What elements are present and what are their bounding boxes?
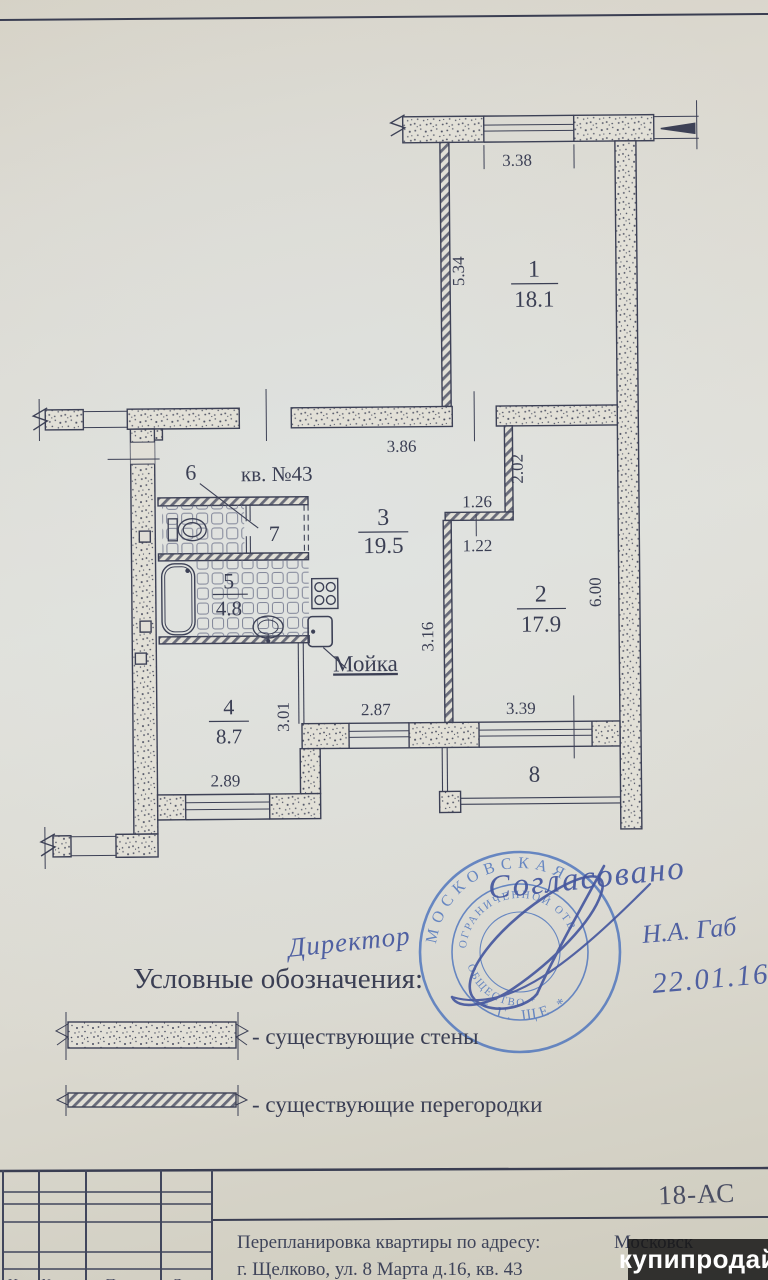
- room-7-number: 7: [269, 521, 280, 546]
- stove-icon: [312, 578, 338, 608]
- dim-room1-height: 5.34: [449, 256, 468, 286]
- dim-top-window: 3.38: [502, 151, 532, 170]
- wall-niche-mark: [135, 653, 146, 664]
- dim-room2-height: 6.00: [586, 577, 605, 607]
- niche-partition-horizontal: [445, 512, 513, 521]
- wall-break-arrow: [661, 123, 695, 133]
- wc-hall-divider: [246, 505, 250, 553]
- kitchen-room2-partition: [443, 520, 453, 722]
- sheet-code: 18-АС: [658, 1178, 736, 1211]
- legend-label-partitions: - существующие перегородки: [252, 1092, 542, 1117]
- plan-labels: 3.38 5.34 1 18.1 3.86 кв. №43 6 7 2.02 1…: [182, 150, 606, 791]
- revision-grid: [3, 1170, 212, 1280]
- wc-bath-partition: [158, 553, 308, 561]
- room-2-area: 17.9: [521, 611, 561, 636]
- dim-niche-width: 1.26: [462, 492, 492, 511]
- project-address: г. Щелково, ул. 8 Марта д.16, кв. 43: [237, 1259, 523, 1280]
- handwriting-name: Н.А. Габ: [640, 912, 738, 949]
- room-8-number: 8: [529, 762, 541, 787]
- dim-room2-window: 3.39: [506, 699, 536, 718]
- left-exterior-wall: [107, 429, 163, 834]
- room-4-area: 8.7: [216, 724, 242, 748]
- room-3-area: 19.5: [363, 533, 403, 558]
- watermark-text: купипродай: [619, 1244, 768, 1275]
- wc-top-partition: [158, 497, 308, 506]
- dim-room4-window: 2.89: [210, 771, 240, 790]
- sink-label: Мойка: [333, 651, 398, 677]
- handwriting-date: 22.01.16: [651, 958, 768, 1000]
- sheet-border-top: [0, 14, 768, 20]
- room-2-number: 2: [535, 582, 547, 608]
- room4-bottom-wall: [158, 794, 321, 820]
- legend-label-walls: - существующие стены: [252, 1024, 479, 1049]
- dim-kitchen-window: 2.87: [361, 700, 391, 719]
- middle-wall: [33, 386, 617, 445]
- room-1-number: 1: [528, 257, 540, 283]
- bath-bottom-partition: [159, 636, 309, 644]
- project-subject: Перепланировка квартиры по адресу:: [237, 1232, 540, 1253]
- dim-niche-offset: 1.22: [462, 536, 492, 555]
- wall-niche-mark: [139, 531, 150, 542]
- dim-kitchen-depth: 3.16: [418, 622, 437, 652]
- dim-niche-depth: 2.02: [508, 454, 527, 484]
- legend-symbol-partition: [57, 1085, 247, 1116]
- room-5-area: 4.8: [216, 596, 242, 620]
- room-1-area: 18.1: [514, 287, 554, 312]
- apartment-label: кв. №43: [241, 462, 313, 487]
- wc-floor-tiles: [162, 505, 244, 554]
- dim-hall-width: 3.86: [387, 437, 417, 456]
- bottom-wall-windows: [300, 695, 621, 794]
- room1-top-wall: [391, 100, 700, 170]
- bathtub-icon: [162, 564, 196, 635]
- hall-kitchen-divider: [304, 505, 308, 553]
- floor-plan-drawing: 3.38 5.34 1 18.1 3.86 кв. №43 6 7 2.02 1…: [0, 0, 768, 1280]
- legend-title: Условные обозначения:: [133, 963, 423, 995]
- legend-symbol-wall: [56, 1012, 248, 1060]
- room-6-number: 6: [185, 460, 196, 485]
- floor-plan: [31, 100, 706, 869]
- watermark-badge: купипродай: [628, 1239, 768, 1280]
- handwriting-director: Директор: [283, 920, 411, 963]
- room4-divider: [298, 643, 304, 724]
- wall-niche-mark: [140, 621, 151, 632]
- dim-room4-depth: 3.01: [274, 702, 293, 732]
- room-5-number: 5: [223, 568, 234, 593]
- room-4-number: 4: [223, 694, 234, 719]
- photographed-blueprint-sheet: 3.38 5.34 1 18.1 3.86 кв. №43 6 7 2.02 1…: [0, 0, 768, 1280]
- room-3-number: 3: [377, 505, 389, 531]
